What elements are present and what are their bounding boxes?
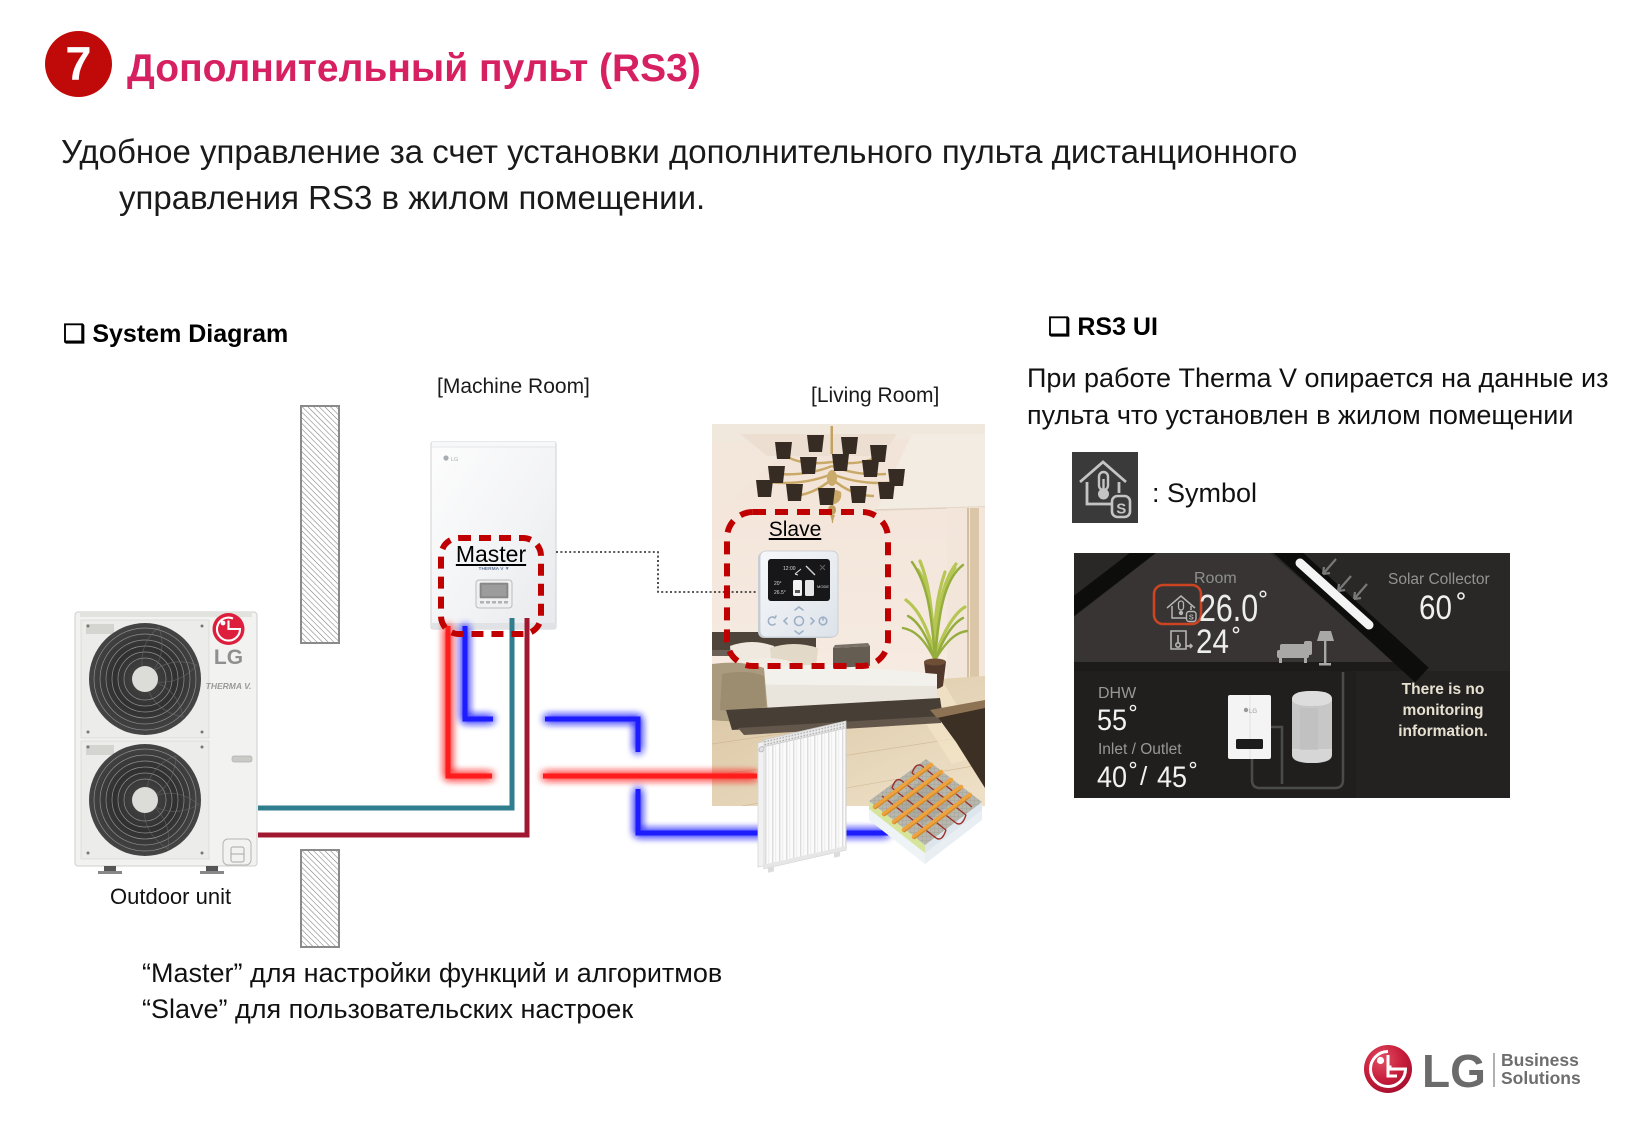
svg-text:40: 40 [1097, 761, 1127, 795]
svg-text:45: 45 [1157, 761, 1187, 795]
svg-text:Inlet / Outlet: Inlet / Outlet [1098, 741, 1182, 758]
svg-text:MODE: MODE [817, 584, 829, 589]
svg-text:26.5°: 26.5° [774, 590, 786, 596]
svg-text:Solar Collector: Solar Collector [1388, 571, 1490, 588]
svg-text:S: S [1189, 613, 1194, 622]
svg-text:12:00: 12:00 [783, 566, 796, 572]
svg-text:55: 55 [1097, 704, 1127, 738]
svg-text:20°: 20° [774, 581, 782, 587]
svg-text:60: 60 [1419, 588, 1452, 626]
svg-text:monitoring: monitoring [1403, 702, 1484, 719]
svg-text:DHW: DHW [1098, 685, 1137, 702]
svg-text:24: 24 [1196, 622, 1229, 660]
svg-text:LG: LG [1249, 709, 1257, 715]
svg-text:S: S [1116, 501, 1126, 518]
svg-text:There is no: There is no [1402, 681, 1485, 698]
svg-text:Room: Room [1194, 570, 1237, 587]
svg-text:information.: information. [1398, 723, 1488, 740]
svg-text:/: / [1140, 761, 1148, 791]
